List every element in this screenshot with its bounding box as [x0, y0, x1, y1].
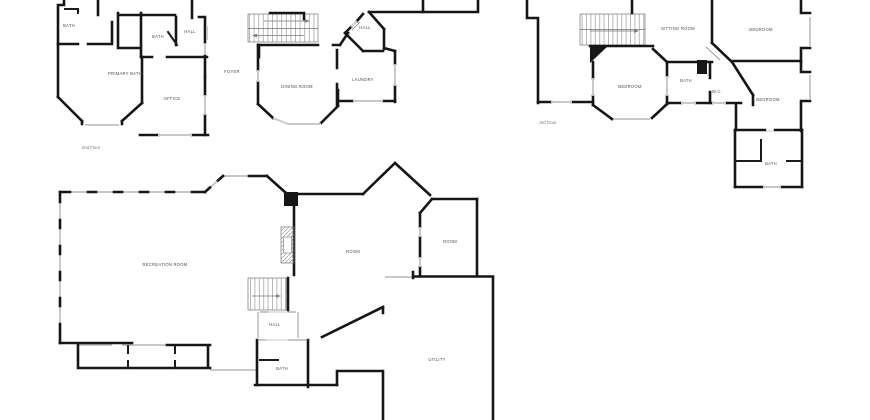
room-label-recreation-room: RECREATION ROOM [142, 262, 187, 267]
floorplan-third-floor: SITTING ROOM BEDROOM BEDROOM BATH W.C. B… [520, 0, 870, 192]
room-label-hall-top: HALL [184, 29, 196, 34]
room-label-bath-mid: BATH [680, 78, 692, 83]
floor-label-second: 2nd Floor [82, 145, 101, 150]
room-label-hall-right: HALL [359, 25, 371, 30]
stairs-third-floor [580, 14, 645, 45]
floor-label-third: 3rd Floor [539, 120, 557, 125]
stairs-lower-level [248, 278, 286, 310]
room-label-room-center: ROOM [346, 249, 360, 254]
room-label-utility: UTILITY [428, 357, 445, 362]
floorplan-sheet: BATH BATH HALL PRIMARY BATH OFFICE FOYER… [0, 0, 870, 420]
room-label-dining-room: DINING ROOM [281, 84, 313, 89]
room-label-hall-lower: HALL [269, 322, 281, 327]
room-label-bedroom-top: BEDROOM [749, 27, 773, 32]
room-label-bedroom-left: BEDROOM [618, 84, 642, 89]
floorplan-lower-level: RECREATION ROOM ROOM ROOM HALL BATH UTIL… [52, 160, 544, 420]
windows-lower-level [60, 176, 249, 343]
floorplan-second-floor: BATH BATH HALL PRIMARY BATH OFFICE FOYER… [42, 0, 487, 155]
room-label-bedroom-right: BEDROOM [756, 97, 780, 102]
room-label-bath-lower-level: BATH [276, 366, 288, 371]
room-label-office: OFFICE [164, 96, 181, 101]
room-label-bath-center: BATH [152, 34, 164, 39]
room-label-bath-lower: BATH [765, 161, 777, 166]
stairs-second-floor [248, 14, 318, 42]
room-label-wc: W.C. [712, 89, 722, 94]
room-label-sitting-room: SITTING ROOM [661, 26, 695, 31]
room-label-primary-bath: PRIMARY BATH [108, 71, 142, 76]
room-label-room-right: ROOM [443, 239, 457, 244]
room-label-bath-upper: BATH [63, 23, 75, 28]
fireplace [281, 227, 294, 263]
room-label-foyer: FOYER [224, 69, 240, 74]
room-label-laundry: LAUNDRY [352, 77, 374, 82]
